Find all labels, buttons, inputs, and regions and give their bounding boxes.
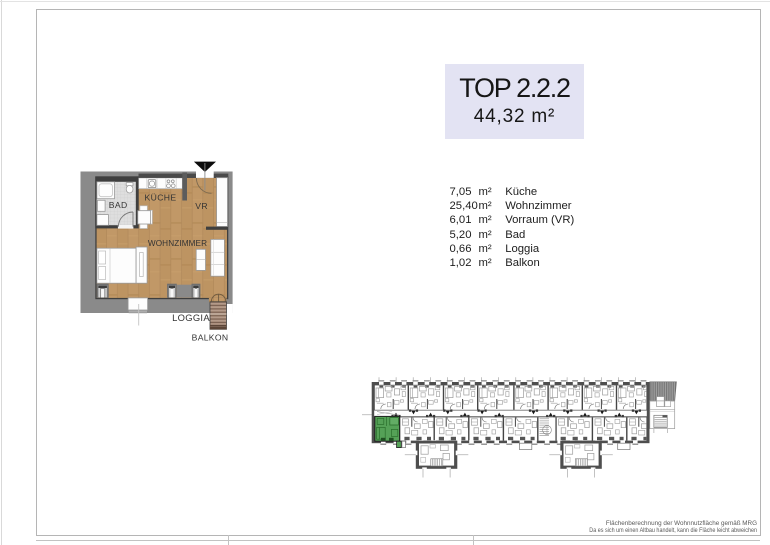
svg-text:VR: VR <box>195 201 208 211</box>
svg-text:BAD: BAD <box>109 200 128 210</box>
svg-text:LOGGIA: LOGGIA <box>172 312 210 323</box>
svg-text:BALKON: BALKON <box>192 333 229 343</box>
svg-text:KÜCHE: KÜCHE <box>144 193 176 203</box>
svg-text:WOHNZIMMER: WOHNZIMMER <box>148 239 207 248</box>
